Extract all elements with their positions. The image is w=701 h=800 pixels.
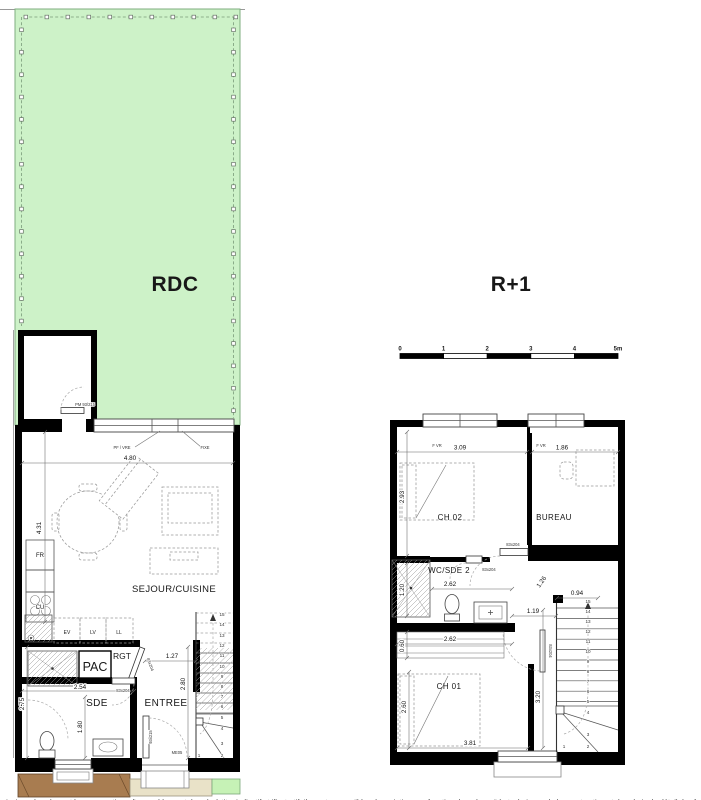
- room-ch01: CH 01: [437, 682, 462, 691]
- room-sde: SDE: [86, 698, 108, 709]
- ch01-door-leaf: [540, 630, 545, 672]
- rdc-stairs: 151413121110987654321: [196, 612, 233, 758]
- door-size-rgt: 83x204: [146, 657, 156, 672]
- label-ll: LL: [116, 630, 122, 636]
- fence-post: [24, 15, 28, 19]
- fence-post: [20, 297, 24, 301]
- window-label-pfvre: PF / VRE: [113, 445, 130, 450]
- fence-post: [20, 252, 24, 256]
- fence-post: [232, 319, 236, 323]
- stair-step-number: 12: [219, 643, 225, 648]
- fence-post: [232, 252, 236, 256]
- room-rgt: RGT: [113, 651, 131, 661]
- fence-post: [20, 274, 24, 278]
- stair-step-number: 8: [221, 684, 224, 689]
- fence-post: [232, 364, 236, 368]
- window-label-fvr-2: F VR: [536, 443, 545, 448]
- entry-landing: [141, 771, 189, 788]
- fence-post: [20, 230, 24, 234]
- pac-unit-small: [25, 615, 52, 642]
- door-size-sde: 83x204: [116, 688, 130, 693]
- stair-step-number: 15: [585, 599, 591, 604]
- floor-plan-canvas: RDC R+1 012345m: [0, 0, 701, 800]
- fence-post: [20, 162, 24, 166]
- entry-door-code: ME05: [172, 750, 183, 755]
- scalebar-segment: [444, 354, 488, 359]
- fence-post: [171, 15, 175, 19]
- stair-step-number: 9: [221, 674, 224, 679]
- stair-step-number: 13: [585, 619, 591, 624]
- stair-step-number: 15: [219, 612, 225, 617]
- fence-post: [234, 15, 238, 19]
- stair-step-number: 5: [221, 715, 224, 720]
- fence-post: [232, 118, 236, 122]
- scalebar-segment: [400, 354, 444, 359]
- fence-post: [20, 28, 24, 32]
- room-wc-sde2: WC/SDE 2: [428, 566, 470, 575]
- desk-chair: [560, 462, 573, 479]
- fence-post: [232, 297, 236, 301]
- fence-post: [213, 15, 217, 19]
- stair-newel-r1: [556, 706, 564, 714]
- label-ev: EV: [64, 630, 71, 636]
- scalebar-tick-label: 1: [442, 347, 446, 353]
- rdc-title: RDC: [152, 273, 199, 296]
- rdc-labels: PM 93/215 PF / VRE FIXE 4.80 4.31 FR CU …: [19, 402, 216, 755]
- stair-step-number: 7: [587, 679, 590, 684]
- scale-bar: 012345m: [398, 347, 622, 359]
- room-sejour-cuisine: SEJOUR/CUISINE: [132, 584, 216, 595]
- stair-step-number: 6: [587, 689, 590, 694]
- scalebar-segment: [531, 354, 575, 359]
- rdc-exterior: [18, 769, 240, 797]
- room-ch02: CH 02: [438, 513, 463, 522]
- landing-door-leaf: [500, 549, 528, 556]
- scalebar-tick-label: 2: [486, 347, 490, 353]
- toilet-r1: [445, 595, 459, 614]
- dim-119: 1.19: [527, 608, 540, 615]
- dim-260: 2.60: [401, 700, 408, 713]
- room-pac: PAC: [83, 660, 108, 674]
- stair-step-number: 9: [587, 659, 590, 664]
- fence-post: [66, 15, 70, 19]
- fence-post: [232, 185, 236, 189]
- sofa-angled: [99, 455, 158, 519]
- dim-126: 1.26: [535, 575, 548, 589]
- chair: [79, 553, 97, 560]
- scalebar-tick-label: 3: [529, 347, 533, 353]
- dim-262b: 2.62: [444, 636, 457, 643]
- dim-262a: 2.62: [444, 581, 457, 588]
- entry-door-size: 93x215: [148, 730, 153, 744]
- fence-post: [232, 409, 236, 413]
- window-label-fvr-1: F VR: [432, 443, 441, 448]
- door-size-landing: 83x204: [506, 542, 520, 547]
- dim-120: 1.20: [399, 583, 406, 596]
- stair-step-number: 11: [220, 653, 225, 658]
- fence-post: [232, 342, 236, 346]
- fence-post: [232, 207, 236, 211]
- r1-bottom-window-sill: [494, 762, 561, 777]
- stair-step-number: 11: [586, 639, 591, 644]
- dim-280: 2.80: [180, 677, 187, 690]
- label-cu: CU: [36, 605, 45, 611]
- scalebar-segment: [574, 354, 618, 359]
- fence-post: [20, 50, 24, 54]
- fence-post: [232, 28, 236, 32]
- stair-step-number: 10: [219, 664, 225, 669]
- dim-060: 0.60: [399, 639, 406, 652]
- sde-door-leaf: [112, 678, 135, 684]
- fence-post: [108, 15, 112, 19]
- stair-step-number: 14: [219, 622, 225, 627]
- wc-door-leaf: [466, 556, 482, 563]
- door-size-wc: 83x204: [482, 567, 496, 572]
- fence-post: [20, 185, 24, 189]
- grass-patch: [212, 779, 240, 794]
- stair-step-number: 14: [585, 609, 591, 614]
- sde-window-sill: [53, 769, 93, 783]
- stair-step-number: 3: [221, 741, 224, 746]
- floor-plan-page: RDC R+1 012345m: [0, 0, 701, 800]
- room-entree: ENTREE: [145, 698, 188, 709]
- fence-post: [129, 15, 133, 19]
- annex-door-label: PM 93/215: [75, 402, 96, 407]
- washbasin: [93, 739, 123, 756]
- fence-post: [20, 319, 24, 323]
- bed-ch02: [400, 463, 474, 520]
- scalebar-tick-label: 5m: [614, 347, 623, 353]
- label-fr: FR: [36, 553, 45, 559]
- dim-275: 2.75: [19, 697, 26, 710]
- fence-post: [232, 50, 236, 54]
- stair-step-number: 10: [585, 649, 591, 654]
- window-label-fixe: FIXE: [200, 445, 209, 450]
- label-lv: LV: [90, 630, 96, 636]
- dim-480: 4.80: [124, 455, 137, 462]
- stair-step-number: 2: [587, 744, 590, 749]
- fence-post: [20, 140, 24, 144]
- stair-step-number: 2: [221, 753, 224, 758]
- fence-post: [232, 73, 236, 77]
- dim-320: 3.20: [535, 690, 542, 703]
- stair-step-number: 13: [219, 633, 225, 638]
- toilet: [40, 732, 54, 751]
- dim-431: 4.31: [36, 521, 43, 534]
- scalebar-tick-label: 0: [398, 347, 402, 353]
- dim-381: 3.81: [464, 740, 477, 747]
- stair-walk-line: [200, 614, 213, 734]
- fence-post: [20, 73, 24, 77]
- rdc-furniture: [25, 455, 218, 758]
- dim-180: 1.80: [77, 720, 84, 733]
- fence-post: [45, 15, 49, 19]
- r1-title: R+1: [491, 273, 532, 296]
- stair-step-number: 7: [221, 694, 224, 699]
- stair-step-number: 4: [221, 726, 224, 731]
- fence-post: [20, 95, 24, 99]
- scalebar-tick-label: 4: [573, 347, 577, 353]
- dim-127: 1.27: [166, 653, 179, 660]
- door-size-ch01: 83x204: [548, 644, 553, 658]
- stair-step-number: 3: [587, 732, 590, 737]
- dim-094: 0.94: [571, 590, 584, 597]
- scalebar-segment: [487, 354, 531, 359]
- dim-293: 2.93: [399, 490, 406, 503]
- stair-step-number: 1: [198, 753, 201, 758]
- stair-step-number: 12: [585, 629, 591, 634]
- fence-post: [232, 140, 236, 144]
- dim-186: 1.86: [556, 445, 569, 452]
- stair-step-number: 4: [587, 710, 590, 715]
- fence-post: [232, 230, 236, 234]
- dim-254: 2.54: [74, 684, 87, 691]
- annex-door: [61, 408, 84, 414]
- fence-post: [232, 95, 236, 99]
- fence-post: [232, 386, 236, 390]
- fence-post: [150, 15, 154, 19]
- r1-stairs: 151413121110987654321: [556, 599, 618, 752]
- sofa: [162, 487, 218, 535]
- fence-post: [232, 162, 236, 166]
- fence-post: [20, 207, 24, 211]
- fence-post: [87, 15, 91, 19]
- stair-step-number: 1: [563, 744, 566, 749]
- r1-walls: [390, 420, 625, 765]
- rdc-stair-numbers: 151413121110987654321: [198, 612, 225, 758]
- annex: [18, 330, 97, 425]
- chair: [79, 484, 97, 491]
- stair-step-number: 6: [221, 704, 224, 709]
- stair-newel: [196, 718, 203, 725]
- desk: [576, 450, 614, 486]
- stair-step-number: 8: [587, 669, 590, 674]
- fence-post: [192, 15, 196, 19]
- stair-step-number: 5: [587, 699, 590, 704]
- fence-post: [20, 118, 24, 122]
- fence-post: [232, 274, 236, 278]
- room-bureau: BUREAU: [536, 513, 572, 522]
- dim-309: 3.09: [454, 445, 467, 452]
